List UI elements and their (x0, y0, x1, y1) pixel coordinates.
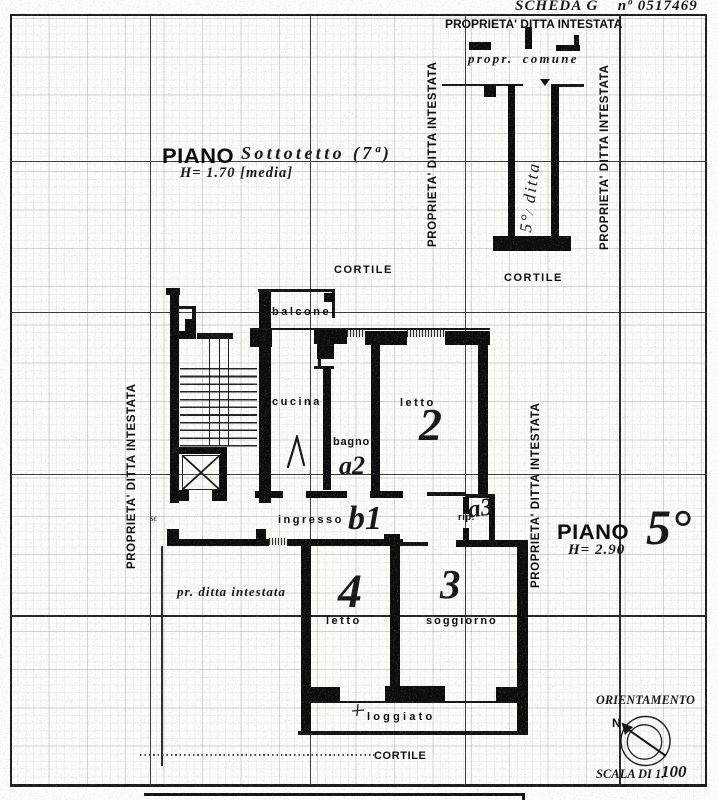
svg-text:N: N (612, 716, 621, 730)
